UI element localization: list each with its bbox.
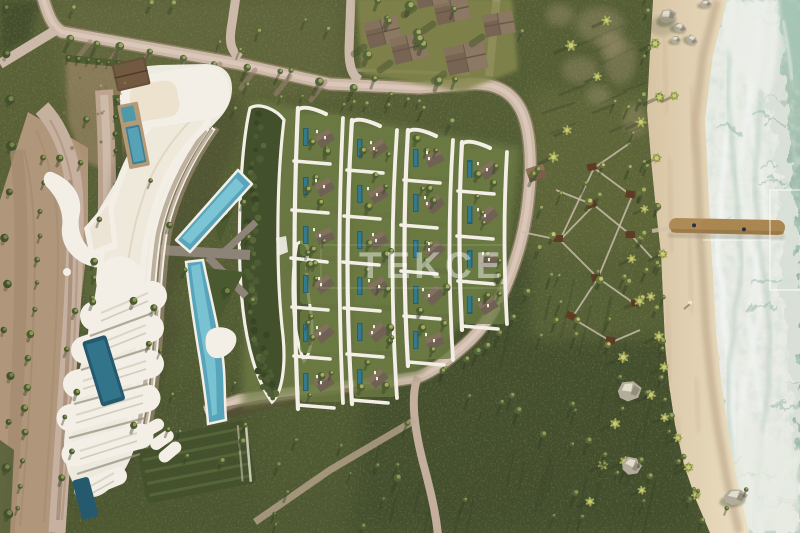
svg-text:TEKCE: TEKCE	[359, 245, 504, 286]
